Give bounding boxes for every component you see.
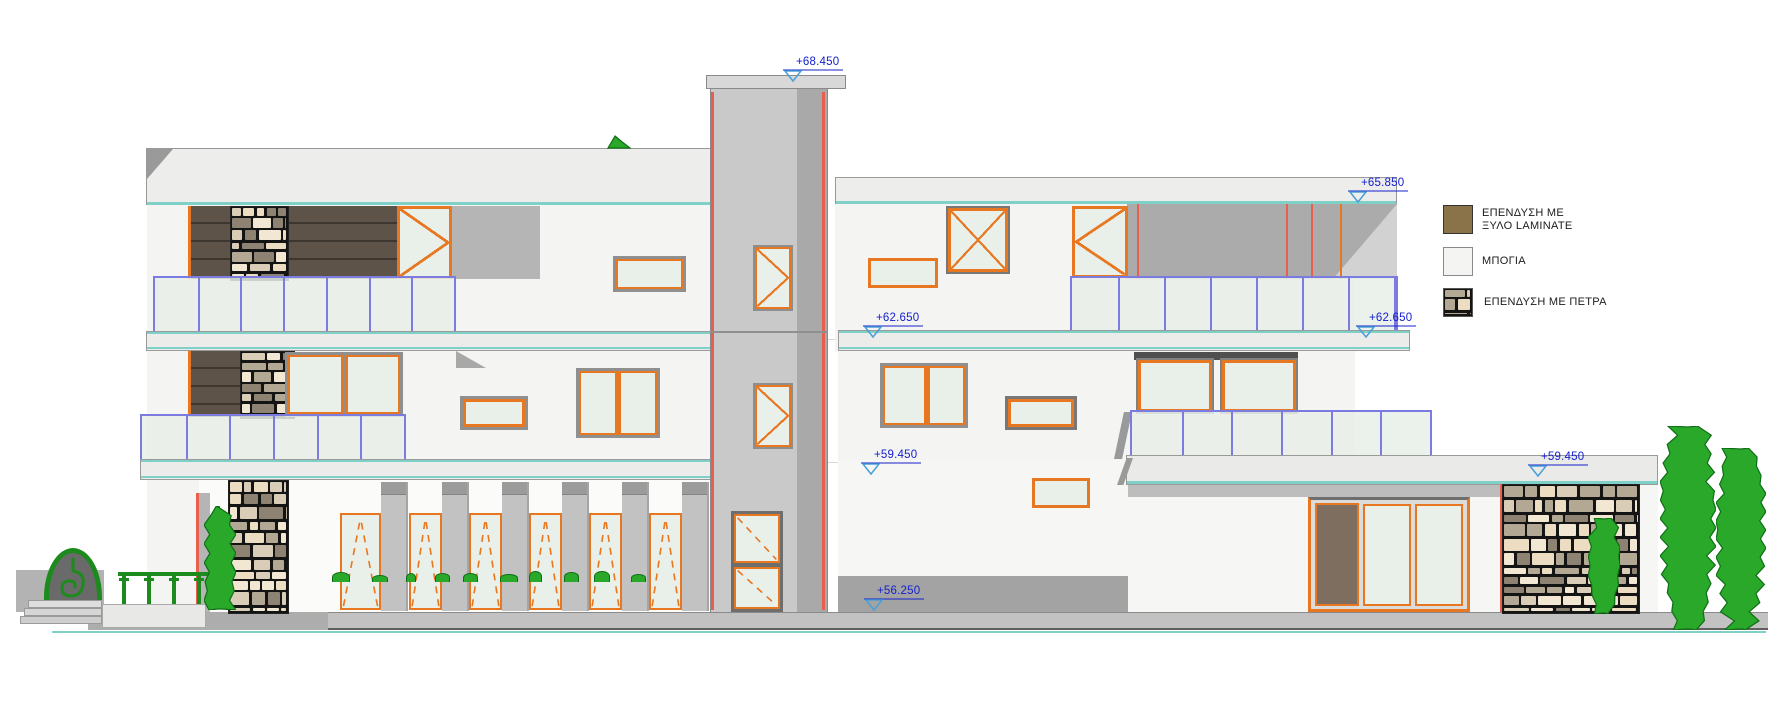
stone bbox=[242, 394, 251, 401]
lower-slab-teal-bottom bbox=[141, 476, 711, 478]
railing-post bbox=[240, 278, 242, 332]
railing-post bbox=[326, 278, 328, 332]
shrub bbox=[372, 575, 388, 583]
stone bbox=[1517, 553, 1530, 565]
stone bbox=[1632, 568, 1637, 574]
stone bbox=[1531, 608, 1553, 611]
stone bbox=[230, 494, 241, 504]
stone bbox=[273, 264, 286, 271]
arch-spiral-ornament bbox=[49, 553, 97, 607]
stone bbox=[1540, 486, 1555, 497]
stone bbox=[260, 522, 275, 530]
lower-slab-teal-top bbox=[141, 460, 711, 462]
stone bbox=[275, 545, 286, 557]
garden-step-2 bbox=[24, 608, 102, 616]
stone bbox=[1555, 500, 1566, 512]
stone bbox=[256, 572, 269, 578]
railing-post bbox=[411, 278, 413, 332]
bush-graphic bbox=[204, 506, 236, 610]
right-topfloor-xwindow-surround bbox=[946, 206, 1010, 274]
right-xwindow-left-pane bbox=[883, 366, 926, 425]
right-window-2-surround bbox=[1220, 358, 1298, 414]
stone bbox=[1504, 524, 1525, 536]
railing-post bbox=[1182, 412, 1184, 458]
shrub bbox=[332, 572, 350, 582]
stone bbox=[285, 218, 286, 227]
stone bbox=[267, 608, 278, 611]
marker-label: +65.850 bbox=[1361, 177, 1410, 190]
stone bbox=[1445, 290, 1465, 297]
second-floor-small-window bbox=[463, 399, 525, 427]
right-upper-balcony-railing bbox=[1070, 276, 1398, 331]
legend-swatch-wood bbox=[1443, 205, 1473, 234]
stone bbox=[1563, 596, 1581, 605]
stone bbox=[1559, 524, 1577, 536]
railing-post bbox=[1380, 412, 1382, 458]
pillar-capital bbox=[502, 482, 527, 495]
roof-plant-sprout bbox=[606, 134, 632, 149]
stone bbox=[242, 384, 261, 392]
recess-red-line-3 bbox=[1311, 204, 1313, 279]
railing-post bbox=[1231, 412, 1233, 458]
stone bbox=[242, 243, 264, 249]
stone bbox=[245, 533, 264, 543]
stone bbox=[273, 218, 283, 227]
stone bbox=[272, 572, 286, 578]
stone bbox=[242, 353, 265, 360]
colonnade-pillar bbox=[381, 482, 408, 611]
ground-floor-door bbox=[649, 513, 682, 610]
tower-door-lower-pane bbox=[734, 567, 780, 609]
stone bbox=[1538, 596, 1561, 605]
right-topfloor-xwindow bbox=[948, 208, 1008, 272]
top-floor-recess-shadow bbox=[452, 206, 540, 279]
wood-wall-orange-edge bbox=[188, 206, 191, 279]
railing-post bbox=[317, 416, 319, 460]
left-lower-balcony-railing bbox=[140, 414, 406, 461]
shrub bbox=[594, 571, 610, 582]
stone bbox=[259, 507, 283, 519]
tower-floor-line bbox=[710, 331, 828, 333]
fence-post bbox=[197, 576, 201, 604]
legend-label-paint: ΜΠΟΓΙΑ bbox=[1482, 255, 1526, 268]
door-swing-icon bbox=[736, 516, 778, 561]
pillar-capital bbox=[381, 482, 406, 495]
shrub-row bbox=[330, 568, 650, 582]
door-swing-icon bbox=[531, 515, 560, 608]
right-entrance-assembly bbox=[1308, 497, 1470, 612]
stone bbox=[245, 230, 257, 240]
door-swing-icon bbox=[342, 515, 379, 608]
fence-post bbox=[122, 576, 126, 604]
ground-band bbox=[88, 612, 1768, 630]
shrub bbox=[463, 573, 478, 583]
garden-bush bbox=[204, 506, 236, 610]
garden-low-wall bbox=[102, 604, 206, 628]
stone bbox=[230, 482, 242, 492]
stone bbox=[282, 592, 286, 605]
stone bbox=[278, 522, 286, 530]
legend-label-wood-line2: ΞΥΛΟ LAMINATE bbox=[1482, 220, 1573, 233]
right-small-window bbox=[1008, 399, 1074, 427]
stone bbox=[281, 533, 286, 543]
stone bbox=[1580, 486, 1601, 497]
stone bbox=[1504, 608, 1529, 611]
ground-teal-line bbox=[52, 631, 1766, 633]
colonnade-pillar bbox=[562, 482, 589, 611]
entrance-glass-panel-1 bbox=[1363, 504, 1411, 606]
right-small-window-surround bbox=[1005, 396, 1077, 430]
stone bbox=[250, 264, 271, 271]
stone bbox=[1542, 568, 1552, 574]
railing-post bbox=[1281, 412, 1283, 458]
x-window-right-pane bbox=[619, 371, 657, 435]
stone bbox=[1531, 539, 1546, 551]
stone bbox=[1504, 577, 1518, 585]
stone bbox=[262, 581, 274, 590]
shrub bbox=[435, 573, 450, 582]
shrub bbox=[564, 572, 579, 582]
door-swing-icon bbox=[411, 515, 440, 608]
tower-red-line-right bbox=[822, 92, 825, 610]
level-symbol-icon bbox=[1348, 190, 1410, 204]
right-lower-shadow-band bbox=[1128, 485, 1504, 497]
stone bbox=[232, 264, 247, 271]
tower-window-2 bbox=[755, 385, 791, 447]
stone bbox=[1625, 524, 1636, 536]
stone bbox=[267, 353, 280, 360]
shrub bbox=[500, 574, 517, 582]
wood-wall-orange-edge-2 bbox=[188, 351, 191, 417]
fence-post-crossbar bbox=[194, 578, 204, 581]
stone bbox=[1504, 515, 1526, 522]
stone bbox=[268, 592, 280, 605]
stone bbox=[1618, 587, 1637, 594]
stone bbox=[1528, 515, 1549, 522]
cypress-tall-2 bbox=[1716, 448, 1766, 630]
ground-floor-door bbox=[409, 513, 442, 610]
stone bbox=[1528, 568, 1539, 574]
fence-post-crossbar bbox=[144, 578, 154, 581]
stone bbox=[252, 404, 274, 413]
x-window-left-surround bbox=[576, 368, 660, 438]
stone bbox=[1545, 524, 1556, 536]
stone bbox=[1596, 500, 1614, 512]
marker-label: +59.450 bbox=[1541, 451, 1590, 464]
stone bbox=[244, 494, 259, 504]
stone bbox=[264, 384, 286, 392]
stone bbox=[250, 522, 258, 530]
colonnade-pillar bbox=[442, 482, 469, 611]
stone bbox=[232, 208, 241, 216]
level-symbol-icon bbox=[861, 462, 923, 476]
stone bbox=[252, 592, 266, 605]
stone bbox=[232, 230, 242, 240]
stone bbox=[1526, 587, 1545, 594]
stone bbox=[1504, 568, 1526, 574]
fence-post-crossbar bbox=[169, 578, 179, 581]
railing-post bbox=[229, 416, 231, 460]
door-swing-icon bbox=[471, 515, 500, 608]
stone bbox=[268, 363, 283, 370]
level-symbol-icon bbox=[864, 598, 926, 612]
level-symbol-icon bbox=[1528, 464, 1590, 478]
railing-post bbox=[198, 278, 200, 332]
stone bbox=[1617, 486, 1637, 497]
fence-post bbox=[147, 576, 151, 604]
stone bbox=[1629, 577, 1637, 585]
shrub bbox=[631, 574, 647, 582]
stone bbox=[1620, 596, 1637, 605]
marker-label: +68.450 bbox=[796, 56, 845, 69]
elevation-marker-65-850: +65.850 bbox=[1348, 177, 1410, 204]
pillar-capital bbox=[562, 482, 587, 495]
garden-step-1 bbox=[28, 600, 102, 608]
right-window-2 bbox=[1222, 360, 1296, 412]
stone bbox=[267, 208, 276, 216]
railing-post bbox=[186, 416, 188, 460]
stone bbox=[254, 252, 274, 262]
right-roof-slab bbox=[835, 177, 1397, 204]
right-mid-balcony-railing bbox=[1130, 410, 1432, 459]
pillar-capital bbox=[622, 482, 647, 495]
stone bbox=[1616, 500, 1632, 512]
shrub bbox=[529, 571, 542, 582]
stone bbox=[1504, 500, 1514, 512]
shrub bbox=[406, 573, 416, 582]
elevation-marker-62-650-right: +62.650 bbox=[1356, 312, 1418, 339]
railing-post bbox=[1210, 278, 1212, 330]
stone bbox=[250, 581, 260, 590]
stone bbox=[243, 208, 254, 216]
elevation-marker-68-450: +68.450 bbox=[783, 56, 845, 83]
stone bbox=[259, 230, 281, 240]
stone bbox=[1504, 587, 1524, 594]
elevation-marker-59-450-center: +59.450 bbox=[861, 449, 923, 476]
garden-step-3 bbox=[20, 616, 102, 624]
legend-swatch-stone bbox=[1443, 288, 1473, 317]
stone bbox=[261, 494, 272, 504]
tower-window-1 bbox=[755, 247, 791, 309]
cypress-graphic bbox=[1660, 426, 1716, 630]
railing-post bbox=[1302, 278, 1304, 330]
legend-label-stone: ΕΠΕΝΔΥΣΗ ΜΕ ΠΕΤΡΑ bbox=[1484, 296, 1607, 309]
entrance-door-panel bbox=[1315, 503, 1359, 606]
left-roof-slab bbox=[146, 148, 712, 205]
colonnade-pillar bbox=[682, 482, 709, 611]
marker-label: +62.650 bbox=[876, 312, 925, 325]
recess-red-line-1 bbox=[1137, 204, 1139, 279]
stone bbox=[274, 494, 286, 504]
tower-window-2-surround bbox=[753, 383, 793, 449]
stone bbox=[1565, 587, 1574, 594]
stone bbox=[1504, 596, 1519, 605]
ground-floor-door bbox=[589, 513, 622, 610]
stone bbox=[281, 608, 286, 611]
stone bbox=[1535, 500, 1542, 512]
mid-slab-teal-bottom bbox=[147, 347, 711, 349]
recess-red-line-2 bbox=[1286, 204, 1288, 279]
stone bbox=[1504, 539, 1529, 551]
stone bbox=[1620, 553, 1637, 565]
tower-window-1-surround bbox=[753, 245, 793, 311]
stone bbox=[254, 560, 271, 570]
stone bbox=[1630, 539, 1637, 551]
left-roof-teal-edge bbox=[147, 202, 711, 205]
stone bbox=[1548, 539, 1557, 551]
railing-post bbox=[1348, 278, 1350, 330]
stone bbox=[244, 482, 251, 492]
stone bbox=[242, 363, 266, 370]
colonnade-pillar bbox=[502, 482, 529, 611]
stone bbox=[254, 372, 272, 382]
legend-label-wood-line1: ΕΠΕΝΔΥΣΗ ΜΕ bbox=[1482, 207, 1564, 220]
ground-floor-door bbox=[529, 513, 562, 610]
stone bbox=[270, 482, 282, 492]
stone bbox=[278, 208, 286, 216]
sprout-graphic bbox=[606, 134, 632, 149]
stone bbox=[253, 218, 271, 227]
legend-swatch-paint bbox=[1443, 247, 1473, 276]
wood-laminate-wall-mid bbox=[191, 351, 240, 417]
pillar-capital bbox=[442, 482, 467, 495]
railing-post bbox=[283, 278, 285, 332]
stone bbox=[1445, 313, 1467, 314]
stone bbox=[1467, 290, 1470, 297]
stone bbox=[283, 230, 286, 240]
right-topfloor-small-window bbox=[868, 258, 938, 288]
railing-post bbox=[1331, 412, 1333, 458]
stone bbox=[273, 560, 284, 570]
stone bbox=[1520, 577, 1538, 585]
mid-lower-small-window bbox=[1032, 478, 1090, 508]
stone bbox=[242, 404, 250, 413]
stone bbox=[1504, 553, 1514, 565]
stone bbox=[1521, 596, 1535, 605]
stone bbox=[1445, 299, 1455, 310]
stone bbox=[1532, 553, 1553, 565]
stone bbox=[1545, 500, 1553, 512]
stone bbox=[1603, 486, 1615, 497]
stone bbox=[257, 208, 264, 216]
fence-post bbox=[172, 576, 176, 604]
cypress-graphic bbox=[1716, 448, 1766, 630]
elevation-marker-59-450-right: +59.450 bbox=[1528, 451, 1590, 478]
ground-floor-door bbox=[469, 513, 502, 610]
stone bbox=[232, 252, 252, 262]
stone bbox=[253, 545, 273, 557]
x-window-left-pane bbox=[579, 371, 617, 435]
marker-label: +62.650 bbox=[1369, 312, 1418, 325]
double-window-left-pane bbox=[288, 355, 343, 414]
stone bbox=[276, 581, 286, 590]
stone bbox=[1540, 577, 1564, 585]
top-floor-window bbox=[616, 259, 683, 289]
tower-door-upper-pane bbox=[734, 514, 780, 563]
stone bbox=[1556, 608, 1570, 611]
pillar-capital bbox=[682, 482, 707, 495]
railing-post bbox=[360, 416, 362, 460]
stone bbox=[254, 394, 273, 401]
double-window-right-pane bbox=[346, 355, 401, 414]
door-swing-icon bbox=[651, 515, 680, 608]
entrance-glass-panel-2 bbox=[1415, 504, 1463, 606]
legend: ΕΠΕΝΔΥΣΗ ΜΕ ΞΥΛΟ LAMINATE ΜΠΟΓΙΑ ΕΠΕΝΔΥΣ… bbox=[1443, 205, 1693, 325]
ground-floor-colonnade bbox=[332, 480, 712, 612]
mid-slab-teal-top bbox=[147, 332, 711, 334]
stone bbox=[266, 533, 278, 543]
stone bbox=[253, 608, 265, 611]
elevation-marker-56-250: +56.250 bbox=[864, 585, 926, 612]
ground-floor-door bbox=[340, 513, 381, 610]
stone bbox=[1569, 500, 1594, 512]
stone bbox=[1552, 515, 1563, 522]
door-swing-icon bbox=[736, 569, 778, 607]
stone-cladding-column-top bbox=[230, 206, 289, 281]
stone bbox=[1565, 515, 1588, 522]
stone bbox=[276, 252, 286, 262]
double-window-surround bbox=[285, 352, 403, 417]
level-symbol-icon bbox=[863, 325, 925, 339]
stone-cladding-column-ground bbox=[228, 480, 289, 614]
wood-laminate-wall-top bbox=[191, 206, 398, 279]
cypress-small bbox=[1588, 518, 1620, 614]
railing-post bbox=[273, 416, 275, 460]
right-window-1-surround bbox=[1136, 358, 1214, 414]
stone bbox=[1525, 486, 1537, 497]
stone bbox=[1560, 539, 1572, 551]
architectural-elevation-drawing: +68.450 +65.850 +62.650 +62.650 +59.450 … bbox=[0, 0, 1776, 728]
marker-label: +59.450 bbox=[874, 449, 923, 462]
stone bbox=[1635, 500, 1637, 512]
stone bbox=[232, 218, 251, 227]
stone bbox=[1458, 299, 1470, 310]
recess-orange-line bbox=[1340, 204, 1342, 279]
stone bbox=[1504, 486, 1523, 497]
stone bbox=[1547, 587, 1562, 594]
marker-label: +56.250 bbox=[877, 585, 926, 598]
door-swing-icon bbox=[591, 515, 620, 608]
top-floor-window-surround bbox=[613, 256, 686, 292]
top-floor-glass-door bbox=[397, 206, 452, 279]
railing-post bbox=[369, 278, 371, 332]
stone bbox=[1516, 500, 1532, 512]
right-xwindow-right-pane bbox=[928, 366, 965, 425]
stone bbox=[1527, 524, 1542, 536]
elevation-marker-62-650-center: +62.650 bbox=[863, 312, 925, 339]
stone bbox=[240, 507, 257, 519]
railing-post bbox=[1118, 278, 1120, 330]
stone bbox=[254, 482, 268, 492]
cypress-graphic bbox=[1588, 518, 1620, 614]
level-symbol-icon bbox=[1356, 325, 1418, 339]
tower-red-line-left bbox=[711, 92, 714, 610]
tower-entrance-door-surround bbox=[731, 511, 783, 612]
level-symbol-icon bbox=[783, 69, 845, 83]
stone bbox=[1556, 553, 1564, 565]
cypress-tall-1 bbox=[1660, 426, 1716, 630]
stone bbox=[1557, 486, 1577, 497]
stone bbox=[266, 243, 285, 249]
stone bbox=[242, 372, 251, 382]
right-topfloor-balcony-door bbox=[1072, 206, 1128, 278]
left-upper-balcony-railing bbox=[153, 276, 456, 333]
stone bbox=[284, 482, 286, 492]
small-window-surround bbox=[460, 396, 528, 430]
stone bbox=[1567, 577, 1586, 585]
railing-post bbox=[1256, 278, 1258, 330]
right-window-1 bbox=[1138, 360, 1212, 412]
